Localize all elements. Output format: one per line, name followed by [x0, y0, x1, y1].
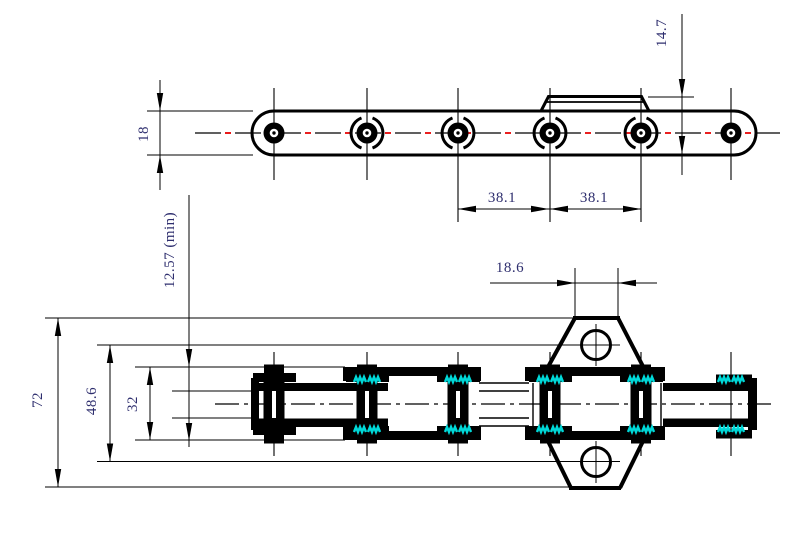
- arrow-left-icon: [618, 280, 636, 286]
- arrow-down-icon: [186, 349, 192, 367]
- technical-drawing-page: 18 14.7 38.1 38.1 18.6 12.57 (min) 72 48…: [0, 0, 800, 533]
- chain-width-label: 18: [136, 126, 152, 142]
- pin: [448, 123, 469, 144]
- arrow-down-icon: [186, 423, 192, 441]
- dimension-labels: 18 14.7 38.1 38.1 18.6 12.57 (min) 72 48…: [30, 19, 670, 415]
- arrow-up-icon: [55, 318, 61, 336]
- top-view-chain-plan: [147, 14, 780, 222]
- arrow-left-icon: [458, 206, 476, 212]
- arrow-right-icon: [557, 280, 575, 286]
- attachment-top-width-label: 18.6: [496, 260, 524, 276]
- hole-span-label: 48.6: [84, 387, 100, 415]
- arrow-right-icon: [623, 206, 641, 212]
- arrow-right-icon: [531, 206, 549, 212]
- arrow-up-icon: [147, 367, 153, 385]
- overall-height-label: 72: [30, 392, 46, 408]
- chain-engineering-drawing: 18 14.7 38.1 38.1 18.6 12.57 (min) 72 48…: [0, 0, 800, 533]
- pin: [264, 123, 285, 144]
- arrow-down-icon: [157, 93, 163, 111]
- arrow-down-icon: [107, 444, 113, 462]
- pin: [540, 123, 561, 144]
- arrow-up-icon: [157, 155, 163, 173]
- side-view-chain: [45, 195, 775, 488]
- arrow-down-icon: [147, 422, 153, 440]
- pin: [357, 123, 378, 144]
- arrow-left-icon: [550, 206, 568, 212]
- attachment-drop-label: 14.7: [654, 19, 670, 47]
- pitch-label-2: 38.1: [580, 190, 608, 206]
- attachment-hump-outline: [541, 97, 649, 112]
- pin: [721, 123, 742, 144]
- pitch-label-1: 38.1: [488, 190, 516, 206]
- pin: [631, 123, 652, 144]
- inner-clearance-label: 12.57 (min): [162, 212, 178, 288]
- arrow-down-icon: [55, 469, 61, 487]
- arrow-down-icon: [679, 79, 685, 97]
- arrow-up-icon: [107, 345, 113, 363]
- plate-span-label: 32: [125, 396, 141, 412]
- attachment-top-width-extensions: [575, 268, 618, 316]
